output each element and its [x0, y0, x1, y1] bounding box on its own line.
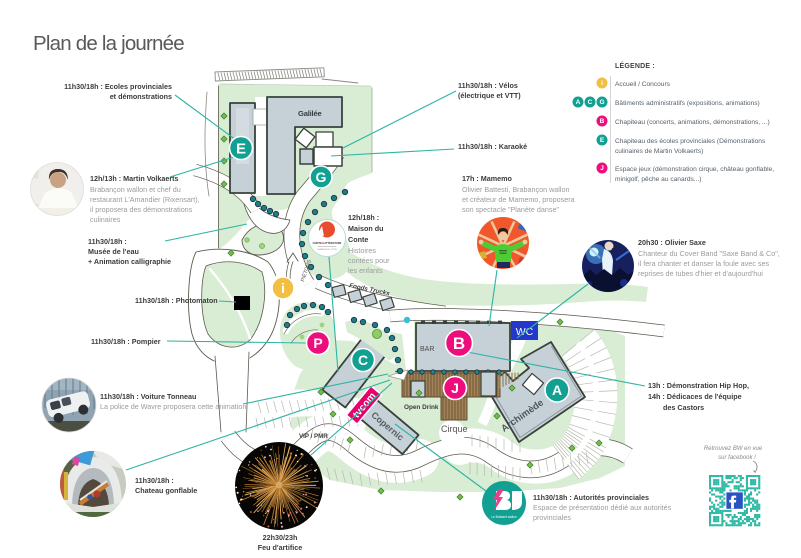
svg-text:C: C	[588, 99, 593, 106]
svg-text:C: C	[358, 352, 368, 368]
svg-text:11h30/18h : Ecoles provinciale: 11h30/18h : Ecoles provinciales	[64, 82, 172, 91]
svg-text:et démonstrations: et démonstrations	[110, 92, 172, 101]
svg-text:Espace de présentation dédié a: Espace de présentation dédié aux autorit…	[533, 503, 672, 512]
svg-text:11h30/18h : Photomaton: 11h30/18h : Photomaton	[135, 296, 218, 305]
svg-text:Maison du: Maison du	[348, 224, 384, 233]
svg-text:BAR: BAR	[420, 346, 434, 353]
svg-text:B: B	[453, 334, 465, 353]
svg-text:J: J	[451, 380, 459, 396]
svg-text:22h30/23h: 22h30/23h	[263, 533, 298, 542]
svg-text:P: P	[313, 335, 322, 351]
svg-text:les enfants: les enfants	[348, 266, 383, 275]
svg-text:11h30/18h : Karaoké: 11h30/18h : Karaoké	[458, 142, 527, 151]
svg-text:12h/13h : Martin Volkaerts: 12h/13h : Martin Volkaerts	[90, 174, 179, 183]
svg-text:i: i	[281, 280, 285, 296]
svg-text:Musée de l'eau: Musée de l'eau	[88, 247, 139, 256]
svg-text:11h30/18h : Pompier: 11h30/18h : Pompier	[91, 337, 161, 346]
svg-text:il fera chanter et danser la f: il fera chanter et danser la foule avec …	[638, 259, 769, 268]
svg-text:(électrique et VTT): (électrique et VTT)	[458, 91, 521, 100]
svg-text:culinaires: culinaires	[90, 215, 121, 224]
svg-text:VIP / PMR: VIP / PMR	[299, 433, 328, 440]
svg-text:11h30/18h : Autorités provinci: 11h30/18h : Autorités provinciales	[533, 493, 649, 502]
svg-text:J: J	[600, 165, 604, 172]
svg-text:Bâtiments administratifs (expo: Bâtiments administratifs (expositions, a…	[615, 100, 760, 107]
svg-text:Galilée: Galilée	[298, 109, 322, 118]
svg-text:11h30/18h :: 11h30/18h :	[88, 237, 127, 246]
svg-text:son spectacle "Planète danse": son spectacle "Planète danse"	[462, 205, 559, 214]
svg-text:restaurant L'Amandier (Rixensa: restaurant L'Amandier (Rixensart),	[90, 195, 200, 204]
svg-text:Accueil / Concours: Accueil / Concours	[615, 81, 671, 88]
svg-text:des Castors: des Castors	[663, 403, 704, 412]
svg-text:Espace jeux (démonstration cir: Espace jeux (démonstration cirque, châte…	[615, 166, 774, 173]
svg-text:G: G	[599, 99, 604, 106]
svg-text:Open Drink: Open Drink	[404, 404, 439, 411]
svg-text:sur facebook !: sur facebook !	[718, 455, 756, 461]
svg-text:Histoires: Histoires	[348, 246, 376, 255]
svg-text:contées pour: contées pour	[348, 256, 390, 265]
svg-text:A: A	[552, 382, 562, 398]
svg-text:11h30/18h :: 11h30/18h :	[135, 476, 174, 485]
svg-text:E: E	[600, 137, 605, 144]
svg-text:B: B	[600, 118, 605, 125]
svg-text:A: A	[576, 99, 581, 106]
svg-text:Le Brabant wallon: Le Brabant wallon	[491, 515, 517, 519]
svg-text:13h : Démonstration Hip Hop,: 13h : Démonstration Hip Hop,	[648, 381, 749, 390]
svg-text:Retrouvez BW en vue: Retrouvez BW en vue	[704, 446, 763, 452]
svg-text:Chanteur du Cover Band "Saxe B: Chanteur du Cover Band "Saxe Band & Co",	[638, 249, 780, 258]
svg-text:E: E	[236, 140, 246, 157]
svg-text:Feu d'artifice: Feu d'artifice	[258, 543, 302, 552]
svg-text:La police de Wavre proposera c: La police de Wavre proposera cette anima…	[100, 402, 246, 411]
svg-text:+ Animation calligraphie: + Animation calligraphie	[88, 257, 171, 266]
svg-text:17h : Mamemo: 17h : Mamemo	[462, 174, 513, 183]
svg-text:LÉGENDE :: LÉGENDE :	[615, 61, 655, 70]
svg-text:Olivier Battesti, Brabançon wa: Olivier Battesti, Brabançon wallon	[462, 185, 569, 194]
svg-text:Chapiteau (concerts, animation: Chapiteau (concerts, animations, démonst…	[615, 119, 770, 126]
svg-text:culinaires de Martin Volkaerts: culinaires de Martin Volkaerts)	[615, 148, 703, 155]
svg-text:20h30 : Olivier Saxe: 20h30 : Olivier Saxe	[638, 238, 706, 247]
svg-text:G: G	[316, 169, 327, 185]
svg-text:minigolf, pêche au canards...): minigolf, pêche au canards...)	[615, 176, 702, 183]
svg-text:11h30/18h : Voiture Tonneau: 11h30/18h : Voiture Tonneau	[100, 392, 196, 401]
svg-text:Plan de la journée: Plan de la journée	[33, 32, 184, 55]
svg-text:provinciales: provinciales	[533, 513, 571, 522]
svg-text:12h/18h :: 12h/18h :	[348, 213, 379, 222]
svg-text:LA MAISON DU CONTE: LA MAISON DU CONTE	[317, 248, 337, 251]
svg-text:reprises de tubes d'hier et d': reprises de tubes d'hier et d'aujourd'hu…	[638, 269, 763, 278]
svg-text:Conte: Conte	[348, 235, 368, 244]
svg-text:Cirque: Cirque	[441, 424, 468, 434]
svg-text:14h : Dédicaces de l'équipe: 14h : Dédicaces de l'équipe	[648, 392, 742, 401]
svg-text:Chapiteau des écoles provincia: Chapiteau des écoles provinciales (Démon…	[615, 138, 766, 145]
svg-text:Chateau gonflable: Chateau gonflable	[135, 486, 197, 495]
svg-text:et créateur de Mamemo, propose: et créateur de Mamemo, proposera	[462, 195, 575, 204]
svg-text:il proposera des démonstration: il proposera des démonstrations	[90, 205, 193, 214]
svg-text:i: i	[601, 80, 603, 87]
svg-text:Brabançon wallon et chef du: Brabançon wallon et chef du	[90, 185, 181, 194]
svg-text:11h30/18h : Vélos: 11h30/18h : Vélos	[458, 81, 518, 90]
